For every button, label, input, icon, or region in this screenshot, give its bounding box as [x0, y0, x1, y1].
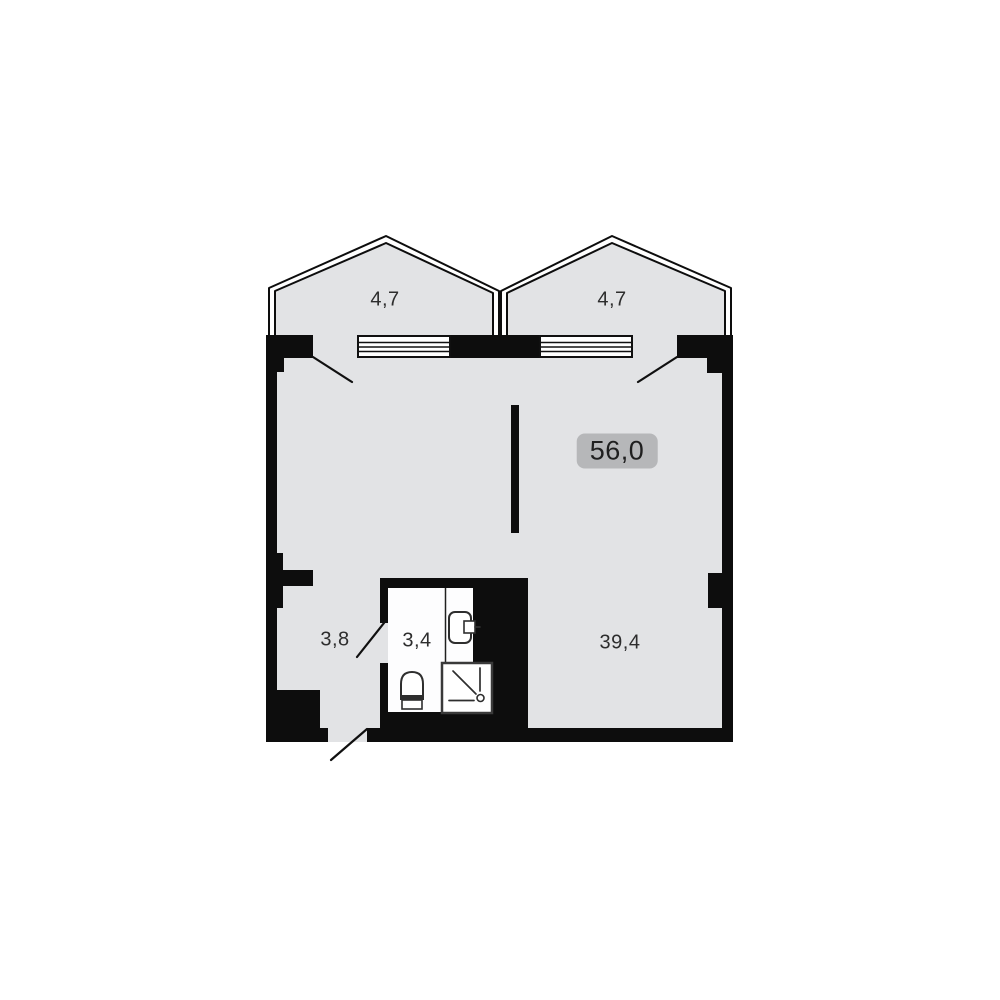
wall-segment [277, 570, 313, 586]
floor-plan-page: 4,7 4,7 3,8 3,4 39,4 56,0 [0, 0, 1000, 1000]
wall-segment [320, 728, 328, 742]
wall-segment [380, 712, 528, 728]
balcony-right-area-label: 4,7 [597, 289, 626, 312]
wall-segment [722, 335, 733, 742]
wall-segment [380, 588, 388, 623]
balcony-left [269, 236, 499, 336]
wall-segment [367, 728, 733, 742]
balcony-right [501, 236, 731, 336]
bathroom-area-label: 3,4 [402, 630, 431, 653]
hallway-area-label: 3,8 [320, 629, 349, 652]
wall-segment [380, 663, 388, 712]
wall-segment [266, 690, 320, 742]
window-left [358, 336, 450, 357]
window-right [540, 336, 632, 357]
shower-icon [442, 663, 492, 713]
wall-segment [450, 335, 540, 358]
wall-segment [708, 573, 723, 608]
wall-segment [380, 578, 528, 588]
balcony-left-area-label: 4,7 [370, 289, 399, 312]
wall-segment [266, 335, 277, 695]
toilet-icon [401, 672, 423, 709]
total-area-badge: 56,0 [577, 433, 658, 468]
partition-wall [511, 405, 519, 533]
floor-plan-drawing [0, 0, 1000, 1000]
living-room-area-label: 39,4 [600, 632, 641, 655]
